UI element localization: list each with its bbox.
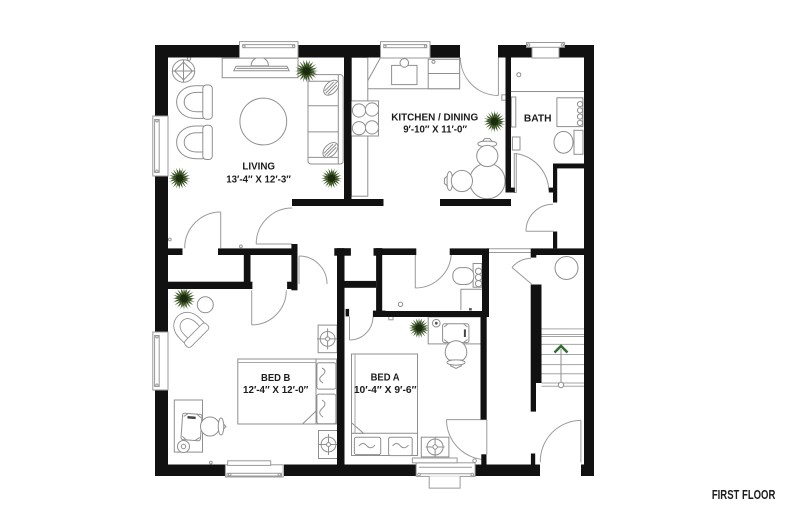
svg-text:BED A: BED A xyxy=(371,372,400,383)
svg-text:KITCHEN / DINING: KITCHEN / DINING xyxy=(391,113,478,124)
svg-text:BATH: BATH xyxy=(524,114,552,125)
svg-text:12′-4″ X 12′-0″: 12′-4″ X 12′-0″ xyxy=(243,385,308,396)
svg-text:9′-10″ X 11′-0″: 9′-10″ X 11′-0″ xyxy=(403,125,467,136)
svg-text:10′-4″ X 9′-6″: 10′-4″ X 9′-6″ xyxy=(354,385,417,396)
svg-text:LIVING: LIVING xyxy=(242,162,275,173)
svg-text:13′-4″ X 12′-3″: 13′-4″ X 12′-3″ xyxy=(226,174,291,185)
svg-text:FIRST FLOOR: FIRST FLOOR xyxy=(712,487,776,502)
svg-text:BED B: BED B xyxy=(261,373,291,384)
